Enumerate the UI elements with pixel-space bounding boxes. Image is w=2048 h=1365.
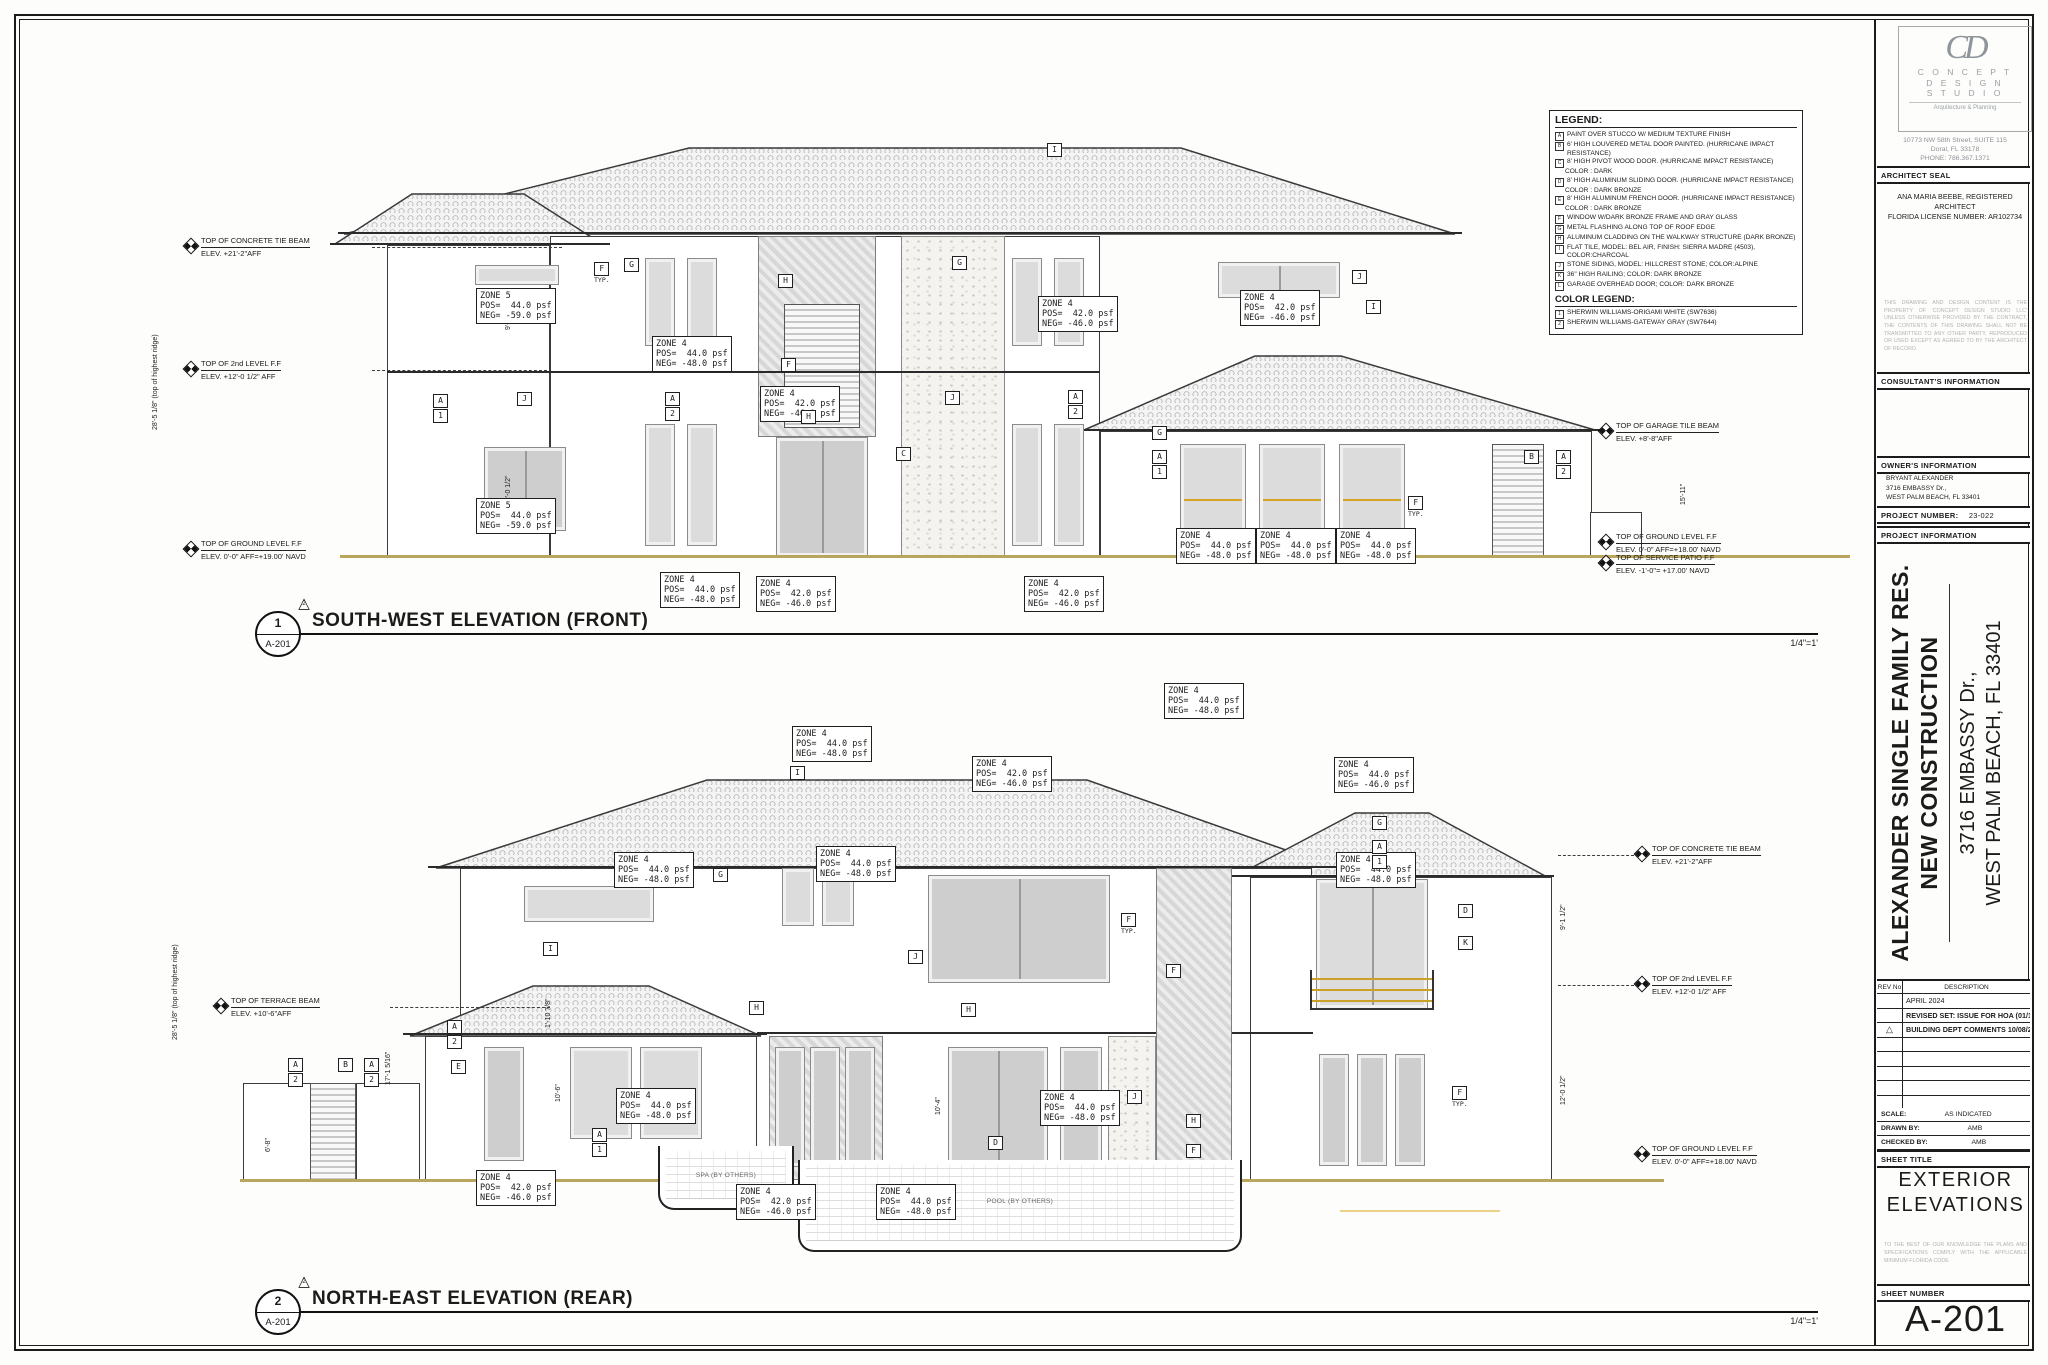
- keynote-tag: J: [945, 391, 960, 405]
- rear-sheet-ref: A-201: [257, 1313, 299, 1332]
- balcony-railing: [1310, 970, 1434, 1010]
- zone-annotation: ZONE 5 POS= 44.0 psf NEG= -59.0 psf: [476, 498, 556, 534]
- keynote-tag: A2: [364, 1058, 379, 1087]
- legend-item: C8' HIGH PIVOT WOOD DOOR. (HURRICANE IMP…: [1555, 158, 1797, 168]
- keynote-tag: K: [1458, 936, 1473, 950]
- keynote-tag: A2: [288, 1058, 303, 1087]
- elevation-marker-elev: ELEV. +10'-6"AFF: [231, 1008, 320, 1019]
- zone-annotation: ZONE 4 POS= 44.0 psf NEG= -48.0 psf: [616, 1088, 696, 1124]
- elevation-marker-text: TOP OF 2nd LEVEL F.FELEV. +12'-0 1/2" AF…: [201, 359, 281, 382]
- keynote-number: 1: [1152, 465, 1167, 479]
- legend-key: I: [1555, 245, 1564, 254]
- elevation-marker-elev: ELEV. +12'-0 1/2" AFF: [1652, 986, 1732, 997]
- zone-annotation: ZONE 4 POS= 44.0 psf NEG= -48.0 psf: [792, 726, 872, 762]
- front-sheet-ref: A-201: [257, 635, 299, 654]
- window: [687, 424, 717, 546]
- scale-row: SCALE: AS INDICATED: [1877, 1108, 2030, 1122]
- front-elevation-title: SOUTH-WEST ELEVATION (FRONT): [312, 610, 648, 632]
- window-mullion: [1019, 879, 1021, 979]
- keynote-tag: H: [961, 1003, 976, 1017]
- keynote-tag: G: [713, 868, 728, 882]
- dimension-label: 10'-4": [935, 1097, 942, 1115]
- legend-item: GMETAL FLASHING ALONG TOP OF ROOF EDGE: [1555, 224, 1797, 234]
- water-basin: POOL (BY OTHERS): [798, 1160, 1242, 1252]
- legend-key: L: [1555, 282, 1564, 291]
- keynote-tag: J: [1127, 1090, 1142, 1104]
- keynote-letter: D: [988, 1136, 1003, 1150]
- scale-value: AS INDICATED: [1945, 1111, 1992, 1118]
- keynote-letter: G: [1372, 816, 1387, 830]
- legend-items: APAINT OVER STUCCO W/ MEDIUM TEXTURE FIN…: [1555, 131, 1797, 291]
- rev-no-header: REV No: [1877, 981, 1903, 993]
- rear-detail-number: 2: [257, 1291, 299, 1313]
- keynote-letter: F: [1121, 913, 1136, 927]
- legend-text: 8' HIGH ALUMINUM SLIDING DOOR. (HURRICAN…: [1567, 177, 1797, 187]
- elevation-marker-elev: ELEV. +21'-2"AFF: [201, 248, 310, 259]
- elevation-marker: TOP OF SERVICE PATIO F.FELEV. -1'-0"= +1…: [1600, 553, 1715, 576]
- keynote-letter: A: [1152, 450, 1167, 464]
- revision-row: REVISED SET: ISSUE FOR HOA (01/15/2024): [1877, 1009, 2030, 1024]
- project-title-vertical: ALEXANDER SINGLE FAMILY RES. NEW CONSTRU…: [1886, 548, 2030, 978]
- zone-annotation: ZONE 4 POS= 42.0 psf NEG= -46.0 psf: [1024, 576, 1104, 612]
- keynote-letter: F: [1452, 1086, 1467, 1100]
- zone-annotation: ZONE 4 POS= 42.0 psf NEG= -46.0 psf: [476, 1170, 556, 1206]
- keynote-tag: G: [1372, 816, 1387, 830]
- titleblock-divider: [1874, 19, 1876, 1346]
- leader-line: [1558, 855, 1634, 856]
- firm-tagline: Arquitecture & Planning: [1909, 102, 2021, 111]
- keynote-tag: G: [624, 258, 639, 272]
- keynote-number: 2: [1068, 405, 1083, 419]
- legend-text: WINDOW W/DARK BRONZE FRAME AND GRAY GLAS…: [1567, 214, 1797, 224]
- revision-delta-cell: [1877, 1067, 1903, 1081]
- elevation-marker-text: TOP OF GROUND LEVEL F.FELEV. 0'-0" AFF=+…: [1616, 532, 1721, 555]
- owner-name: BRYANT ALEXANDER: [1886, 474, 2029, 484]
- keynote-letter: A: [1556, 450, 1571, 464]
- revision-description: REVISED SET: ISSUE FOR HOA (01/15/2024): [1903, 1011, 2030, 1020]
- keynote-number: 2: [665, 407, 680, 421]
- window: [948, 1047, 1048, 1175]
- keynote-tag: H: [801, 410, 816, 424]
- legend-text-cont: COLOR : DARK BRONZE: [1565, 187, 1797, 196]
- elevation-marker: TOP OF GROUND LEVEL F.FELEV. 0'-0" AFF=+…: [1600, 532, 1721, 555]
- keynote-letter: K: [1458, 936, 1473, 950]
- color-legend-text: SHERWIN WILLIAMS-GATEWAY GRAY (SW7644): [1567, 319, 1797, 329]
- window: [687, 258, 717, 346]
- color-legend-text: SHERWIN WILLIAMS-ORIGAMI WHITE (SW7636): [1567, 309, 1797, 319]
- elevation-marker-label: TOP OF GARAGE TILE BEAM: [1616, 421, 1719, 433]
- zone-annotation: ZONE 4 POS= 44.0 psf NEG= -48.0 psf: [652, 336, 732, 372]
- keynote-letter: J: [1352, 270, 1367, 284]
- keynote-letter: G: [713, 868, 728, 882]
- window: [1395, 1054, 1425, 1166]
- legend-item: LGARAGE OVERHEAD DOOR; COLOR: DARK BRONZ…: [1555, 281, 1797, 291]
- level-marker-icon: [1634, 846, 1651, 863]
- front-title-rule: [299, 633, 1818, 635]
- zone-annotation: ZONE 4 POS= 44.0 psf NEG= -48.0 psf: [816, 846, 896, 882]
- zone-annotation: ZONE 4 POS= 42.0 psf NEG= -46.0 psf: [736, 1184, 816, 1220]
- basin-label: SPA (BY OTHERS): [660, 1172, 792, 1179]
- revision-delta-cell: [1877, 1096, 1903, 1110]
- elevation-marker-label: TOP OF TERRACE BEAM: [231, 996, 320, 1008]
- window: [484, 1047, 524, 1161]
- legend-key: F: [1555, 215, 1564, 224]
- elevation-marker-text: TOP OF TERRACE BEAMELEV. +10'-6"AFF: [231, 996, 320, 1019]
- architect-name: ANA MARIA BEEBE, REGISTERED ARCHITECT: [1880, 192, 2030, 212]
- elevation-marker-label: TOP OF 2nd LEVEL F.F: [201, 359, 281, 371]
- window: [645, 424, 675, 546]
- ground-line: [1240, 1179, 1664, 1182]
- copyright-note: THIS DRAWING AND DESIGN CONTENT IS THE P…: [1884, 300, 2027, 354]
- owners-header: OWNER'S INFORMATION: [1877, 456, 2030, 474]
- zone-annotation: ZONE 4 POS= 42.0 psf NEG= -46.0 psf: [760, 386, 840, 422]
- patio-line: [1340, 1210, 1500, 1212]
- keynote-letter: J: [908, 950, 923, 964]
- architect-license: FLORIDA LICENSE NUMBER: AR102734: [1880, 212, 2030, 222]
- checked-by-value: AMB: [1971, 1139, 1986, 1146]
- zone-annotation: ZONE 4 POS= 42.0 psf NEG= -46.0 psf: [756, 576, 836, 612]
- front-detail-bubble: 1 A-201: [255, 611, 301, 657]
- keynote-letter: H: [961, 1003, 976, 1017]
- window: [1012, 424, 1042, 546]
- sheet-title-header: SHEET TITLE: [1877, 1150, 2030, 1168]
- legend-text: 36" HIGH RAILING; COLOR: DARK BRONZE: [1567, 271, 1797, 281]
- owner-info: BRYANT ALEXANDER 3716 EMBASSY Dr., WEST …: [1886, 474, 2029, 503]
- keynote-letter: I: [1366, 300, 1381, 314]
- legend-key: E: [1555, 196, 1564, 205]
- leader-line: [390, 1007, 550, 1008]
- revision-row: △BUILDING DEPT COMMENTS 10/08/24: [1877, 1023, 2030, 1038]
- ground-line: [240, 1179, 664, 1182]
- revision-delta-cell: [1877, 1009, 1903, 1023]
- revision-description: BUILDING DEPT COMMENTS 10/08/24: [1903, 1025, 2030, 1034]
- elevation-marker: TOP OF GROUND LEVEL F.FELEV. 0'-0" AFF=+…: [185, 539, 306, 562]
- front-delta-number: 2: [296, 601, 312, 607]
- zone-annotation: ZONE 4 POS= 44.0 psf NEG= -46.0 psf: [1334, 757, 1414, 793]
- keynote-tag: I: [1047, 143, 1062, 157]
- leader-line: [1558, 985, 1634, 986]
- keynote-tag: F: [1166, 964, 1181, 978]
- keynote-tag: F: [1186, 1144, 1201, 1158]
- legend-key: H: [1555, 235, 1564, 244]
- keynote-typ-label: TYP.: [594, 277, 610, 284]
- keynote-typ-label: TYP.: [1121, 928, 1137, 935]
- elevation-marker-elev: ELEV. -1'-0"= +17.00' NAVD: [1616, 565, 1715, 576]
- elevation-marker-text: TOP OF 2nd LEVEL F.FELEV. +12'-0 1/2" AF…: [1652, 974, 1732, 997]
- revision-delta-cell: [1877, 1052, 1903, 1066]
- zone-annotation: ZONE 4 POS= 44.0 psf NEG= -48.0 psf: [660, 572, 740, 608]
- legend-key: C: [1555, 159, 1564, 168]
- revision-row: [1877, 1081, 2030, 1096]
- zone-annotation: ZONE 5 POS= 44.0 psf NEG= -59.0 psf: [476, 288, 556, 324]
- keynote-tag: F: [781, 358, 796, 372]
- elevation-marker-text: TOP OF SERVICE PATIO F.FELEV. -1'-0"= +1…: [1616, 553, 1715, 576]
- leader-line: [372, 370, 547, 371]
- elevation-marker-text: TOP OF GROUND LEVEL F.FELEV. 0'-0" AFF=+…: [1652, 1144, 1757, 1167]
- keynote-typ-label: TYP.: [1408, 511, 1424, 518]
- project-number-label: PROJECT NUMBER:: [1881, 511, 1958, 520]
- front-scale-label: 1/4"=1': [1730, 638, 1818, 648]
- revision-delta-icon: △: [1877, 1023, 1903, 1037]
- keynote-letter: H: [1186, 1114, 1201, 1128]
- keynote-letter: H: [749, 1001, 764, 1015]
- window: [810, 1047, 840, 1167]
- keynote-tag: H: [1186, 1114, 1201, 1128]
- dimension-label: 6'-8": [265, 1138, 272, 1152]
- keynote-tag: FTYP.: [1452, 1086, 1468, 1108]
- elevation-marker: TOP OF CONCRETE TIE BEAMELEV. +21'-2"AFF: [185, 236, 310, 259]
- checked-by-row: CHECKED BY: AMB: [1877, 1136, 2030, 1150]
- legend-item: FWINDOW W/DARK BRONZE FRAME AND GRAY GLA…: [1555, 214, 1797, 224]
- sheet-number-header: SHEET NUMBER: [1877, 1284, 2030, 1302]
- keynote-letter: J: [945, 391, 960, 405]
- keynote-letter: B: [1524, 450, 1539, 464]
- elevation-marker-label: TOP OF CONCRETE TIE BEAM: [201, 236, 310, 248]
- elevation-marker-elev: ELEV. 0'-0" AFF=+18.00' NAVD: [1652, 1156, 1757, 1167]
- tile-roof: [1083, 354, 1597, 432]
- firm-name-line: C O N C E P T: [1899, 67, 2031, 78]
- level-marker-icon: [183, 238, 200, 255]
- keynote-tag: A1: [592, 1128, 607, 1157]
- scale-label: SCALE:: [1877, 1111, 1906, 1118]
- revision-delta-cell: [1877, 1038, 1903, 1052]
- legend-item: APAINT OVER STUCCO W/ MEDIUM TEXTURE FIN…: [1555, 131, 1797, 141]
- architect-info: ANA MARIA BEEBE, REGISTERED ARCHITECT FL…: [1880, 192, 2030, 222]
- window: [475, 265, 559, 285]
- window: [1054, 424, 1084, 546]
- keynote-tag: E: [451, 1060, 466, 1074]
- keynote-tag: B: [338, 1058, 353, 1072]
- color-legend-item: 1SHERWIN WILLIAMS-ORIGAMI WHITE (SW7636): [1555, 309, 1797, 319]
- keynote-tag: FTYP.: [594, 262, 610, 284]
- revision-table-header: REV No DESCRIPTION: [1877, 981, 2030, 994]
- zone-annotation: ZONE 4 POS= 44.0 psf NEG= -48.0 psf: [1176, 528, 1256, 564]
- elevation-marker-elev: ELEV. +8'-8"AFF: [1616, 433, 1719, 444]
- accent-line: [1263, 499, 1321, 501]
- basin-label: POOL (BY OTHERS): [800, 1198, 1240, 1205]
- keynote-letter: I: [1047, 143, 1062, 157]
- sheet-title: EXTERIOR ELEVATIONS: [1884, 1168, 2027, 1218]
- legend-text: 8' HIGH ALUMINUM FRENCH DOOR. (HURRICANE…: [1567, 195, 1797, 205]
- keynote-letter: A: [433, 394, 448, 408]
- keynote-tag: B: [1524, 450, 1539, 464]
- keynote-letter: F: [1186, 1144, 1201, 1158]
- keynote-tag: J: [1352, 270, 1367, 284]
- rear-elevation-title: NORTH-EAST ELEVATION (REAR): [312, 1288, 633, 1310]
- legend-key: K: [1555, 272, 1564, 281]
- color-legend-items: 1SHERWIN WILLIAMS-ORIGAMI WHITE (SW7636)…: [1555, 309, 1797, 329]
- color-legend-item: 2SHERWIN WILLIAMS-GATEWAY GRAY (SW7644): [1555, 319, 1797, 329]
- architect-seal-header: ARCHITECT SEAL: [1877, 166, 2030, 184]
- zone-annotation: ZONE 4 POS= 42.0 psf NEG= -46.0 psf: [1240, 290, 1320, 326]
- keynote-tag: A1: [433, 394, 448, 423]
- keynote-letter: F: [1166, 964, 1181, 978]
- keynote-tag: I: [1366, 300, 1381, 314]
- project-title-line: ALEXANDER SINGLE FAMILY RES.: [1886, 548, 1915, 978]
- keynote-letter: J: [1127, 1090, 1142, 1104]
- keynote-tag: I: [790, 766, 805, 780]
- keynote-tag: A1: [1372, 840, 1387, 869]
- firm-monogram: CD: [1899, 29, 2031, 67]
- keynote-letter: I: [543, 942, 558, 956]
- elevation-marker-text: TOP OF CONCRETE TIE BEAMELEV. +21'-2"AFF: [1652, 844, 1761, 867]
- revision-row: [1877, 1052, 2030, 1067]
- zone-annotation: ZONE 4 POS= 44.0 psf NEG= -48.0 psf: [1164, 683, 1244, 719]
- keynote-tag: J: [517, 392, 532, 406]
- legend-text-cont: COLOR : DARK: [1565, 168, 1797, 177]
- legend-item: JSTONE SIDING, MODEL: HILLCREST STONE; C…: [1555, 261, 1797, 271]
- owner-address-line: WEST PALM BEACH, FL 33401: [1886, 493, 2029, 503]
- keynote-letter: G: [952, 256, 967, 270]
- elevation-marker-label: TOP OF CONCRETE TIE BEAM: [1652, 844, 1761, 856]
- keynote-tag: A1: [1152, 450, 1167, 479]
- keynote-number: 1: [1372, 855, 1387, 869]
- revision-description: APRIL 2024: [1903, 996, 2030, 1005]
- keynote-letter: A: [364, 1058, 379, 1072]
- sheet-number: A-201: [1884, 1298, 2027, 1340]
- window: [928, 875, 1110, 983]
- level-marker-icon: [183, 361, 200, 378]
- level-marker-icon: [1634, 1146, 1651, 1163]
- legend-text: 8' HIGH PIVOT WOOD DOOR. (HURRICANE IMPA…: [1567, 158, 1797, 168]
- keynote-letter: A: [1372, 840, 1387, 854]
- keynote-tag: A2: [665, 392, 680, 421]
- elevation-marker: TOP OF TERRACE BEAMELEV. +10'-6"AFF: [215, 996, 320, 1019]
- keynote-tag: H: [749, 1001, 764, 1015]
- address-line: Doral, FL 33178: [1880, 145, 2030, 154]
- keynote-tag: FTYP.: [1121, 913, 1137, 935]
- legend-item: K36" HIGH RAILING; COLOR: DARK BRONZE: [1555, 271, 1797, 281]
- legend-text-cont: COLOR : DARK BRONZE: [1565, 205, 1797, 214]
- louvered-panel: [310, 1083, 356, 1180]
- rear-scale-label: 1/4"=1': [1730, 1316, 1818, 1326]
- drawn-by-row: DRAWN BY: AMB: [1877, 1122, 2030, 1136]
- keynote-letter: H: [801, 410, 816, 424]
- compliance-note: TO THE BEST OF OUR KNOWLEDGE THE PLANS A…: [1884, 1242, 2027, 1266]
- edge-line: [330, 243, 610, 245]
- wall: [243, 1083, 311, 1180]
- revision-rows: APRIL 2024REVISED SET: ISSUE FOR HOA (01…: [1877, 994, 2030, 1110]
- legend-key: A: [1555, 132, 1564, 141]
- keynote-letter: D: [1458, 904, 1473, 918]
- level-marker-icon: [183, 541, 200, 558]
- keynote-tag: C: [896, 447, 911, 461]
- legend-text: FLAT TILE, MODEL: BEL AIR, FINISH: SIERR…: [1567, 244, 1797, 261]
- revision-table: REV No DESCRIPTION APRIL 2024REVISED SET…: [1877, 979, 2030, 1110]
- elevation-marker: TOP OF GROUND LEVEL F.FELEV. 0'-0" AFF=+…: [1636, 1144, 1757, 1167]
- window: [524, 886, 654, 922]
- dimension-label: 15'-11": [1680, 484, 1687, 505]
- keynote-number: 2: [364, 1073, 379, 1087]
- keynote-letter: I: [790, 766, 805, 780]
- legend-text: 6' HIGH LOUVERED METAL DOOR PAINTED. (HU…: [1567, 141, 1797, 158]
- keynote-tag: A2: [1068, 390, 1083, 419]
- dimension-label: 28'-5 1/8" (top of highest ridge): [172, 944, 179, 1040]
- keynote-letter: A: [592, 1128, 607, 1142]
- elevation-marker-text: TOP OF GROUND LEVEL F.FELEV. 0'-0" AFF=+…: [201, 539, 306, 562]
- color-legend-key: 1: [1555, 310, 1564, 319]
- window: [645, 258, 675, 346]
- zone-annotation: ZONE 4 POS= 42.0 psf NEG= -46.0 psf: [972, 756, 1052, 792]
- keynote-letter: F: [594, 262, 609, 276]
- project-title-divider: [1949, 584, 1950, 942]
- elevation-marker-label: TOP OF SERVICE PATIO F.F: [1616, 553, 1715, 565]
- keynote-letter: B: [338, 1058, 353, 1072]
- color-legend-title: COLOR LEGEND:: [1555, 294, 1797, 307]
- firm-name-line: S T U D I O: [1899, 88, 2031, 99]
- dimension-label: 12'-0 1/2": [1560, 1075, 1567, 1105]
- legend-item: E8' HIGH ALUMINUM FRENCH DOOR. (HURRICAN…: [1555, 195, 1797, 205]
- legend-item: D8' HIGH ALUMINUM SLIDING DOOR. (HURRICA…: [1555, 177, 1797, 187]
- legend-item: B6' HIGH LOUVERED METAL DOOR PAINTED. (H…: [1555, 141, 1797, 158]
- dimension-label: 17'-1 5/16": [385, 1052, 392, 1085]
- elevation-marker-text: TOP OF GARAGE TILE BEAMELEV. +8'-8"AFF: [1616, 421, 1719, 444]
- checked-by-label: CHECKED BY:: [1877, 1139, 1928, 1146]
- zone-annotation: ZONE 4 POS= 44.0 psf NEG= -48.0 psf: [876, 1184, 956, 1220]
- keynote-number: 1: [433, 409, 448, 423]
- description-header: DESCRIPTION: [1903, 984, 2030, 991]
- keynote-letter: A: [1068, 390, 1083, 404]
- wall: [356, 1083, 420, 1180]
- keynote-number: 1: [592, 1143, 607, 1157]
- elevation-marker-text: TOP OF CONCRETE TIE BEAMELEV. +21'-2"AFF: [201, 236, 310, 259]
- tile-roof: [409, 984, 763, 1038]
- dimension-label: 10'-6": [555, 1084, 562, 1102]
- legend-text: GARAGE OVERHEAD DOOR; COLOR: DARK BRONZE: [1567, 281, 1797, 291]
- keynote-letter: E: [451, 1060, 466, 1074]
- keynote-tag: A2: [447, 1020, 462, 1049]
- keynote-number: 2: [447, 1035, 462, 1049]
- keynote-typ-label: TYP.: [1452, 1101, 1468, 1108]
- leader-line: [372, 247, 562, 248]
- level-marker-icon: [1634, 976, 1651, 993]
- project-address-line: WEST PALM BEACH, FL 33401: [1981, 548, 2007, 978]
- architectural-sheet: SPA (BY OTHERS)POOL (BY OTHERS)ZONE 5 PO…: [0, 0, 2048, 1365]
- drawn-by-label: DRAWN BY:: [1877, 1125, 1920, 1132]
- legend-title: LEGEND:: [1555, 114, 1797, 128]
- legend-box: LEGEND: APAINT OVER STUCCO W/ MEDIUM TEX…: [1549, 110, 1803, 335]
- window: [1357, 1054, 1387, 1166]
- elevation-marker-label: TOP OF GROUND LEVEL F.F: [1652, 1144, 1757, 1156]
- address-line: 10773 NW 58th Street, SUITE 115: [1880, 136, 2030, 145]
- project-title-line: NEW CONSTRUCTION: [1915, 548, 1944, 978]
- firm-logo: CD C O N C E P T D E S I G N S T U D I O…: [1898, 26, 2032, 132]
- window-mullion: [822, 441, 824, 553]
- level-marker-icon: [1598, 534, 1615, 551]
- cladding-panel: [1156, 868, 1232, 1180]
- elevation-marker-label: TOP OF GROUND LEVEL F.F: [1616, 532, 1721, 544]
- accent-line: [1184, 499, 1242, 501]
- keynote-tag: G: [1152, 426, 1167, 440]
- rear-title-rule: [299, 1311, 1818, 1313]
- keynote-number: 2: [1556, 465, 1571, 479]
- elevation-marker-elev: ELEV. +21'-2"AFF: [1652, 856, 1761, 867]
- level-marker-icon: [1598, 555, 1615, 572]
- keynote-letter: G: [624, 258, 639, 272]
- zone-annotation: ZONE 4 POS= 42.0 psf NEG= -46.0 psf: [1038, 296, 1118, 332]
- keynote-tag: D: [988, 1136, 1003, 1150]
- keynote-tag: A2: [1556, 450, 1571, 479]
- project-number-row: PROJECT NUMBER: 23-022: [1877, 506, 2030, 524]
- rear-detail-bubble: 2 A-201: [255, 1289, 301, 1335]
- dimension-label: 1'-10 7/8": [545, 998, 552, 1028]
- edge-line: [387, 371, 1100, 373]
- project-info-header: PROJECT INFORMATION: [1877, 526, 2030, 544]
- dimension-label: 28'-5 1/8" (top of highest ridge): [152, 334, 159, 430]
- keynote-tag: J: [908, 950, 923, 964]
- revision-row: [1877, 1067, 2030, 1082]
- legend-item: IFLAT TILE, MODEL: BEL AIR, FINISH: SIER…: [1555, 244, 1797, 261]
